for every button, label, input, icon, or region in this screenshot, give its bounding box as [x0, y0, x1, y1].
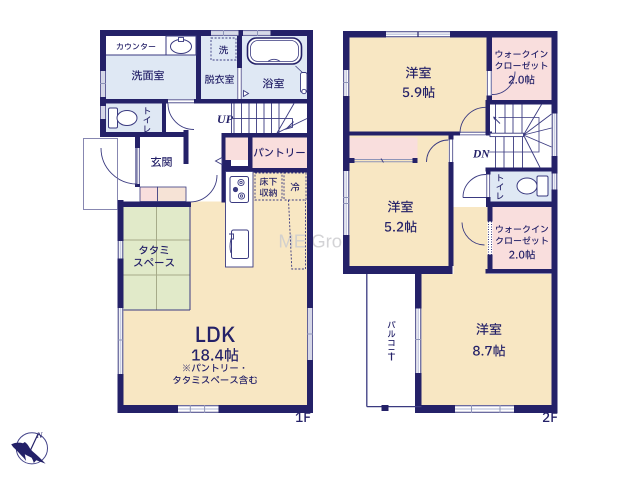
svg-text:DN: DN [472, 149, 490, 161]
